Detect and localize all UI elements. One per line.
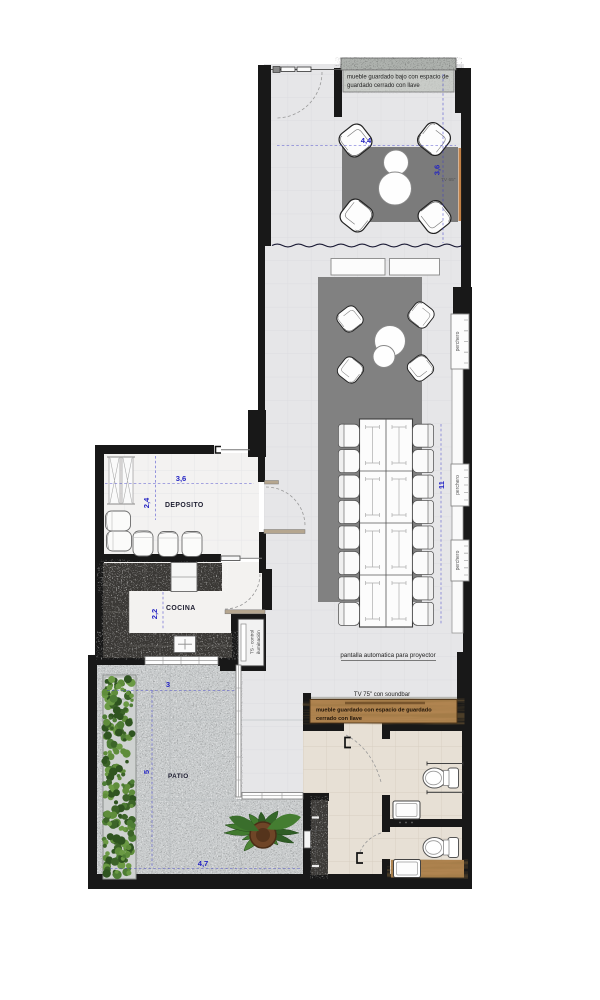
svg-text:cerrado con llave: cerrado con llave <box>316 716 362 722</box>
svg-text:iluminación: iluminación <box>256 630 261 654</box>
svg-text:11: 11 <box>437 480 446 489</box>
svg-text:DEPOSITO: DEPOSITO <box>165 502 204 509</box>
svg-text:2,4: 2,4 <box>142 497 151 508</box>
svg-text:TV 65": TV 65" <box>441 177 456 183</box>
svg-text:mueble guardado con espacio de: mueble guardado con espacio de guardado <box>316 708 432 714</box>
svg-text:perchero: perchero <box>455 331 461 351</box>
svg-text:3,6: 3,6 <box>433 165 442 176</box>
svg-text:guardado cerrado con llave: guardado cerrado con llave <box>347 83 420 89</box>
svg-text:2,2: 2,2 <box>150 609 159 620</box>
svg-text:PATIO: PATIO <box>168 773 189 780</box>
svg-text:4,4: 4,4 <box>361 136 372 145</box>
svg-text:COCINA: COCINA <box>166 605 196 612</box>
svg-text:mueble guardado bajo con espac: mueble guardado bajo con espacio de <box>347 75 449 81</box>
svg-text:perchero: perchero <box>455 550 461 570</box>
svg-text:TS - control: TS - control <box>250 630 255 654</box>
svg-text:perchero: perchero <box>455 475 461 495</box>
svg-text:pantalla automatica para proye: pantalla automatica para proyector <box>340 652 435 659</box>
svg-text:4,7: 4,7 <box>198 859 209 868</box>
svg-text:3: 3 <box>166 680 170 689</box>
svg-text:3,6: 3,6 <box>176 474 187 483</box>
